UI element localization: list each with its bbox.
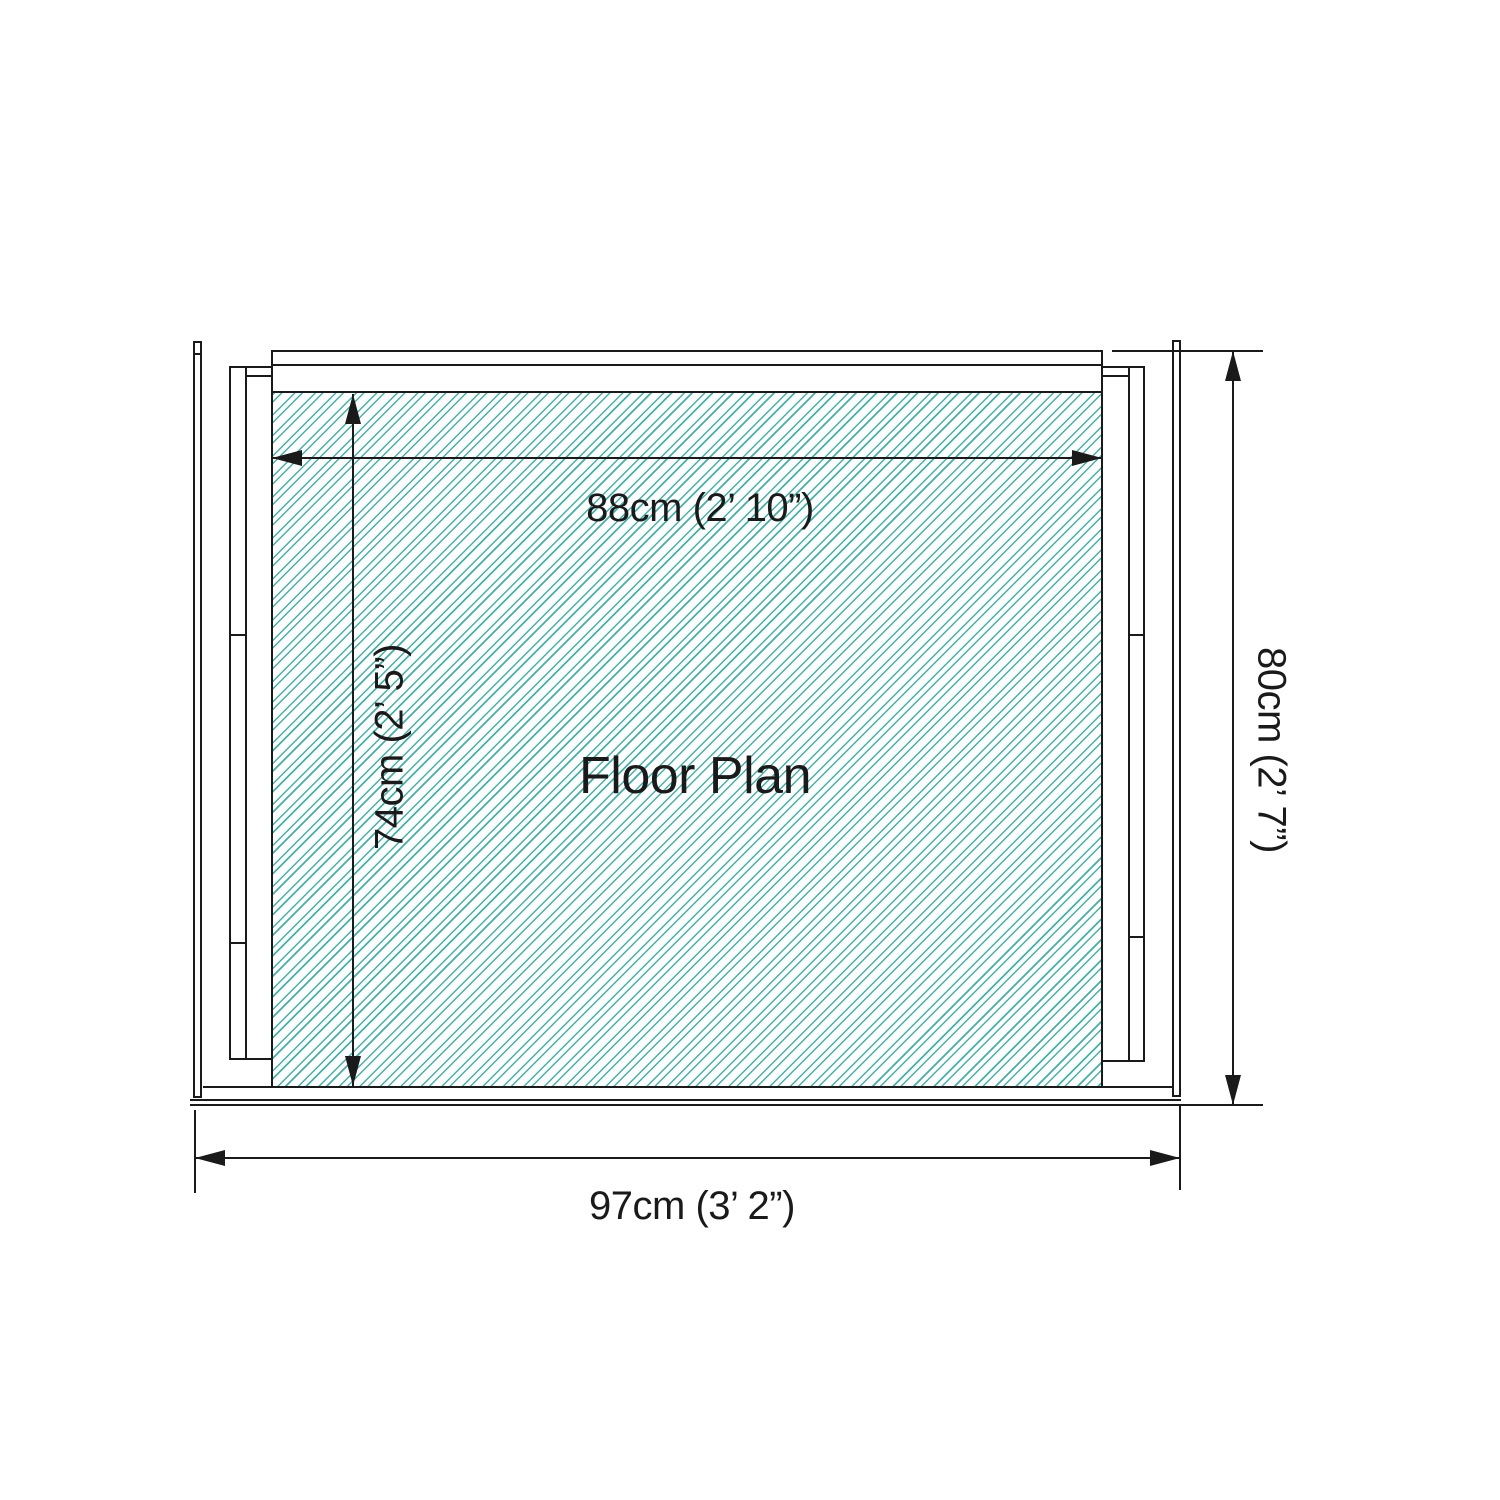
- left-plank-top-cap: [229, 366, 273, 368]
- bottom-wall-outer-line: [190, 1104, 1263, 1106]
- right-plank-bottom-cap: [1101, 1060, 1145, 1062]
- floor-plan-drawing: 88cm (2’ 10”) 74cm (2’ 5”) 97cm (3’ 2”) …: [0, 0, 1500, 1500]
- right-plank-joint-lower: [1128, 936, 1145, 938]
- left-plank-mid-edge: [245, 366, 247, 1060]
- plan-title: Floor Plan: [579, 746, 811, 806]
- dim-line-interior-width: [272, 457, 1102, 459]
- bottom-wall-mid-line: [190, 1099, 1181, 1101]
- right-plank-top-cap: [1101, 366, 1145, 368]
- arrowhead-interior-width-left: [272, 450, 302, 466]
- arrowhead-interior-width-right: [1072, 450, 1102, 466]
- right-stud: [1172, 340, 1181, 1097]
- arrowhead-interior-depth-top: [345, 394, 361, 424]
- right-plank-joint-upper: [1128, 634, 1145, 636]
- left-plank-bottom-cap: [229, 1058, 273, 1060]
- left-plank-outer-edge: [229, 366, 231, 1060]
- label-exterior-depth: 80cm (2’ 7”): [1249, 647, 1294, 853]
- ext-line-bottom-right: [1179, 1106, 1181, 1190]
- label-interior-width: 88cm (2’ 10”): [586, 486, 814, 531]
- arrowhead-interior-depth-bottom: [345, 1056, 361, 1086]
- top-wall-inner-line: [271, 364, 1103, 366]
- arrowhead-exterior-depth-top: [1225, 351, 1241, 381]
- dim-line-exterior-width: [195, 1157, 1180, 1159]
- top-wall-left-cap: [271, 350, 273, 393]
- top-wall-outer-line: [271, 350, 1103, 352]
- right-plank-mid-edge: [1128, 366, 1130, 1062]
- dim-line-interior-depth: [352, 394, 354, 1086]
- left-plank-joint-lower: [229, 942, 247, 944]
- right-plank-outer-edge: [1143, 366, 1145, 1062]
- arrowhead-exterior-width-right: [1150, 1150, 1180, 1166]
- label-interior-depth: 74cm (2’ 5”): [368, 644, 413, 850]
- left-plank-inner-top-cap: [245, 375, 273, 377]
- label-exterior-width: 97cm (3’ 2”): [589, 1184, 795, 1229]
- dim-line-exterior-depth: [1232, 351, 1234, 1105]
- right-plank-inner-top-cap: [1101, 375, 1130, 377]
- arrowhead-exterior-depth-bottom: [1225, 1075, 1241, 1105]
- left-stud: [193, 341, 202, 1098]
- left-stud-joint: [193, 353, 202, 355]
- arrowhead-exterior-width-left: [195, 1150, 225, 1166]
- bottom-wall-inner-line: [203, 1086, 1172, 1088]
- left-plank-joint-upper: [229, 634, 247, 636]
